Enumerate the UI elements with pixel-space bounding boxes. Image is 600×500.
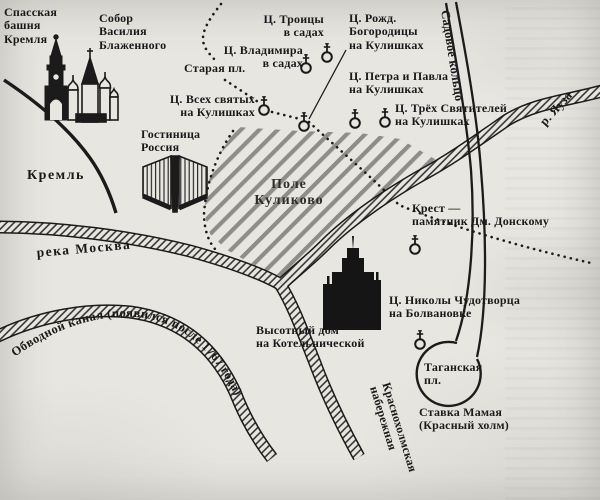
label-stavka-mamaya: Ставка Мамая (Красный холм) xyxy=(419,406,509,433)
hotel-rossiya-drawing xyxy=(143,156,207,212)
kotelnicheskaya-highrise-drawing xyxy=(323,236,381,330)
label-hotel-rossiya: Гостиница Россия xyxy=(141,128,200,155)
label-kulikovo-field: Поле Куликово xyxy=(234,177,344,208)
label-church-tryokh: Ц. Трёх Святителей на Кулишках xyxy=(395,102,507,129)
label-church-rozhd: Ц. Рожд. Богородицы на Кулишках xyxy=(349,12,424,52)
church-nikoly-icon xyxy=(415,331,425,349)
label-spasskaya-tower: Спасская башня Кремля xyxy=(4,6,57,46)
cross-monument-icon xyxy=(410,236,420,254)
st-basil-cathedral-drawing xyxy=(68,48,118,122)
label-church-petra: Ц. Петра и Павла на Кулишках xyxy=(349,70,448,97)
spasskaya-tower-drawing xyxy=(45,35,67,120)
historical-map-figure: Обводной канал (появился после 1767 года… xyxy=(0,0,600,500)
label-kremlin: Кремль xyxy=(27,168,85,184)
church-tryokh-svyatiteley-icon xyxy=(380,109,390,127)
label-st-basil: Собор Василия Блаженного xyxy=(99,12,166,52)
church-rozhd-bogoroditsy-icon xyxy=(299,113,309,131)
label-church-nikoly: Ц. Николы Чудотворца на Болвановке xyxy=(389,294,520,321)
dotted-link-churches xyxy=(272,112,300,119)
label-staraya-square: Старая пл. xyxy=(184,62,245,75)
church-vsekh-svyatykh-icon xyxy=(259,97,269,115)
label-church-troitsy: Ц. Троицы в садах xyxy=(250,13,324,40)
label-highrise: Высотный дом на Котельнической xyxy=(256,324,365,351)
label-cross-monument: Крест — памятник Дм. Донскому xyxy=(412,202,549,229)
church-troitsy-icon xyxy=(322,44,332,62)
church-petra-pavla-icon xyxy=(350,110,360,128)
label-church-vsekh: Ц. Всех святых на Кулишках xyxy=(166,93,255,120)
label-taganskaya-square: Таганская пл. xyxy=(424,361,482,388)
